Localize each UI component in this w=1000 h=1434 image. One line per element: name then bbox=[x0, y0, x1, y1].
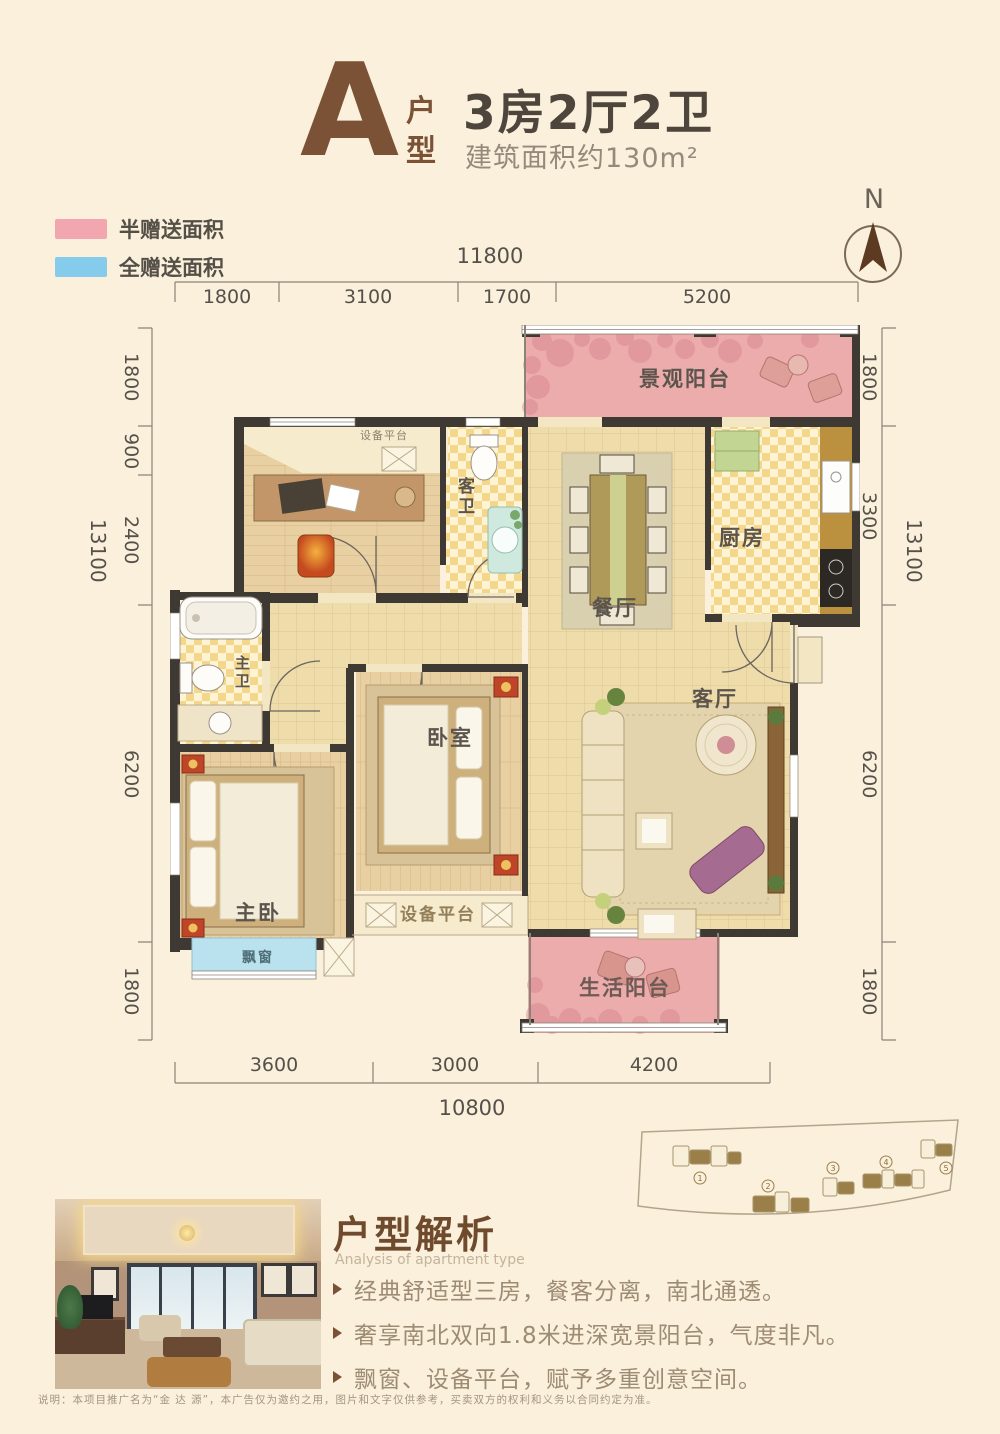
svg-text:5: 5 bbox=[943, 1164, 948, 1173]
room-label-guest-bath: 客卫 bbox=[452, 477, 477, 517]
photo-sofa bbox=[243, 1319, 321, 1367]
analysis-bullet-text: 经典舒适型三房，餐客分离，南北通透。 bbox=[354, 1272, 786, 1306]
analysis-bullet: 飘窗、设备平台，赋予多重创意空间。 bbox=[333, 1360, 973, 1394]
dim-left-seg: 6200 bbox=[118, 729, 144, 819]
dim-left-total: 13100 bbox=[86, 486, 110, 616]
dim-top-seg: 5200 bbox=[657, 286, 757, 308]
photo-chandelier bbox=[179, 1225, 195, 1241]
svg-text:4: 4 bbox=[883, 1158, 888, 1167]
living-room-furniture bbox=[582, 688, 784, 939]
dim-top-seg: 1800 bbox=[177, 286, 277, 308]
bedroom-furniture bbox=[366, 677, 518, 875]
dim-bottom-seg: 3600 bbox=[224, 1054, 324, 1076]
dim-right-total: 13100 bbox=[902, 486, 926, 616]
dim-bottom-seg: 3000 bbox=[405, 1054, 505, 1076]
siteplan: 1 2 3 4 5 bbox=[628, 1116, 973, 1244]
dim-bottom-seg: 4200 bbox=[604, 1054, 704, 1076]
dim-top-total: 11800 bbox=[430, 244, 550, 268]
svg-text:2: 2 bbox=[765, 1182, 770, 1191]
room-label-master-bath: 主卫 bbox=[232, 655, 253, 691]
disclaimer-text: 说明：本项目推广名为“金 达 源”，本广告仅为邀约之用，图片和文字仅供参考，买卖… bbox=[38, 1392, 658, 1407]
triangle-bullet-icon bbox=[333, 1327, 342, 1339]
analysis-subheading: Analysis of apartment type bbox=[335, 1252, 525, 1268]
dim-top-seg: 3100 bbox=[318, 286, 418, 308]
dim-bottom-total: 10800 bbox=[412, 1096, 532, 1120]
svg-text:1: 1 bbox=[697, 1174, 702, 1183]
interior-photo bbox=[55, 1199, 321, 1389]
dim-left-seg: 900 bbox=[118, 406, 144, 496]
dim-left-seg: 2400 bbox=[118, 495, 144, 585]
analysis-heading: 户型解析 bbox=[333, 1204, 497, 1259]
floorplan-poster: A 户型 3房2厅2卫 建筑面积约130m² 半赠送面积 全赠送面积 N bbox=[0, 0, 1000, 1434]
room-label-equip-top: 设备平台 bbox=[360, 427, 460, 443]
dim-top-seg: 1700 bbox=[457, 286, 557, 308]
photo-plant bbox=[57, 1285, 83, 1329]
room-label-view-balcony: 景观阳台 bbox=[595, 363, 775, 393]
room-label-bedroom: 卧室 bbox=[400, 722, 500, 752]
room-label-dining: 餐厅 bbox=[565, 592, 665, 622]
photo-coffee-table bbox=[163, 1337, 221, 1357]
svg-text:3: 3 bbox=[830, 1164, 835, 1173]
analysis-bullet: 奢享南北双向1.8米进深宽景阳台，气度非凡。 bbox=[333, 1316, 973, 1350]
analysis-bullets: 经典舒适型三房，餐客分离，南北通透。 奢享南北双向1.8米进深宽景阳台，气度非凡… bbox=[333, 1272, 973, 1404]
dim-left-seg: 1800 bbox=[118, 946, 144, 1036]
room-label-bay-window: 飘窗 bbox=[218, 947, 298, 967]
room-label-kitchen: 厨房 bbox=[692, 522, 792, 552]
photo-ottoman bbox=[147, 1357, 231, 1387]
triangle-bullet-icon bbox=[333, 1283, 342, 1295]
analysis-bullet-text: 飘窗、设备平台，赋予多重创意空间。 bbox=[354, 1360, 762, 1394]
room-label-life-balcony: 生活阳台 bbox=[545, 972, 705, 1002]
room-label-living: 客厅 bbox=[660, 683, 770, 713]
analysis-bullet-text: 奢享南北双向1.8米进深宽景阳台，气度非凡。 bbox=[354, 1316, 850, 1350]
analysis-bullet: 经典舒适型三房，餐客分离，南北通透。 bbox=[333, 1272, 973, 1306]
room-label-master-bedroom: 主卧 bbox=[208, 897, 308, 927]
triangle-bullet-icon bbox=[333, 1371, 342, 1383]
photo-art-frame bbox=[261, 1263, 289, 1297]
photo-art-frame bbox=[289, 1263, 317, 1297]
room-label-equip-bottom: 设备平台 bbox=[368, 900, 508, 925]
